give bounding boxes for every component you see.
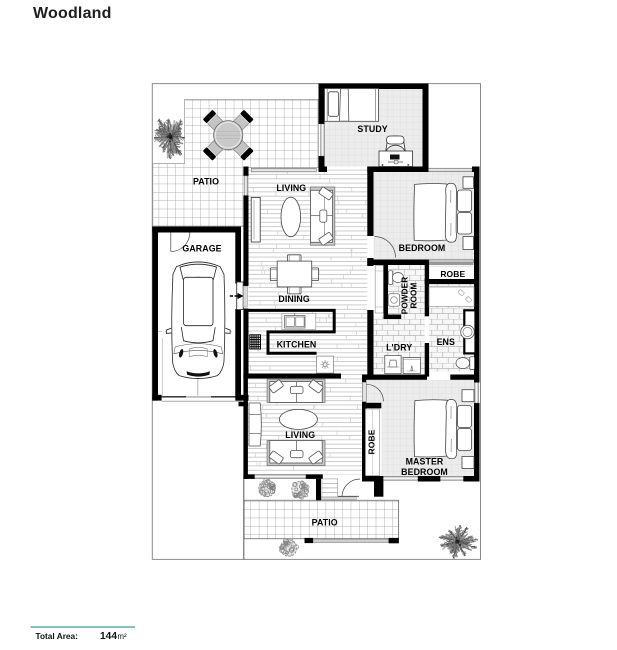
svg-text:GARAGE: GARAGE <box>182 244 221 254</box>
svg-text:LIVING: LIVING <box>285 430 315 440</box>
svg-text:L'DRY: L'DRY <box>386 342 412 352</box>
svg-text:m²: m² <box>118 632 127 641</box>
svg-text:144: 144 <box>100 631 117 642</box>
svg-text:Woodland: Woodland <box>33 5 112 22</box>
svg-text:BEDROOM: BEDROOM <box>399 243 446 253</box>
svg-text:ROBE: ROBE <box>366 429 376 454</box>
svg-text:PATIO: PATIO <box>312 518 338 528</box>
svg-text:ROBE: ROBE <box>440 269 465 279</box>
svg-text:ENS: ENS <box>437 337 455 347</box>
svg-text:PATIO: PATIO <box>193 177 219 187</box>
svg-text:BEDROOM: BEDROOM <box>401 467 448 477</box>
svg-text:LIVING: LIVING <box>276 183 306 193</box>
svg-text:STUDY: STUDY <box>357 124 387 134</box>
svg-text:DINING: DINING <box>278 294 309 304</box>
svg-text:KITCHEN: KITCHEN <box>277 339 317 349</box>
svg-text:Total Area:: Total Area: <box>36 631 78 641</box>
svg-text:POWDER: POWDER <box>401 277 410 314</box>
svg-text:MASTER: MASTER <box>406 457 444 467</box>
svg-text:ROOM: ROOM <box>409 282 418 308</box>
